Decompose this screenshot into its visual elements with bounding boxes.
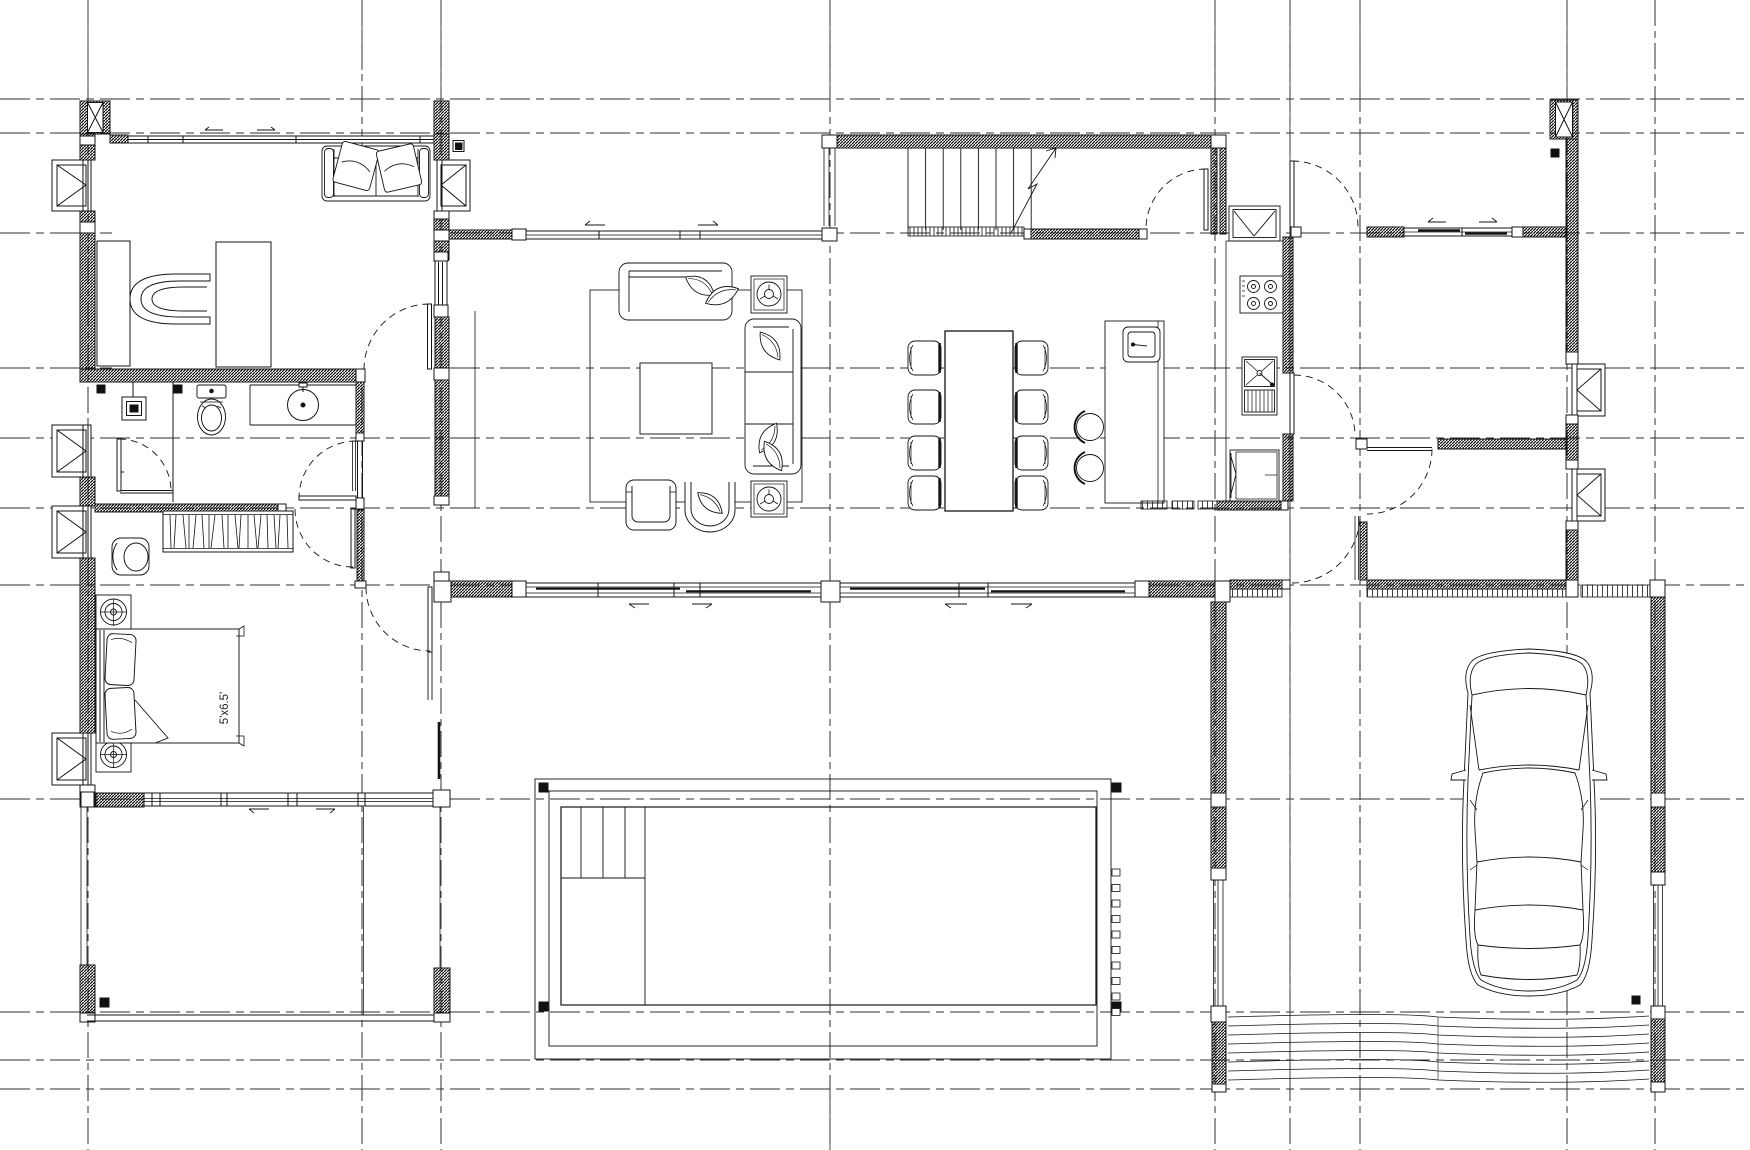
svg-text:5'x6.5': 5'x6.5' (219, 692, 231, 725)
